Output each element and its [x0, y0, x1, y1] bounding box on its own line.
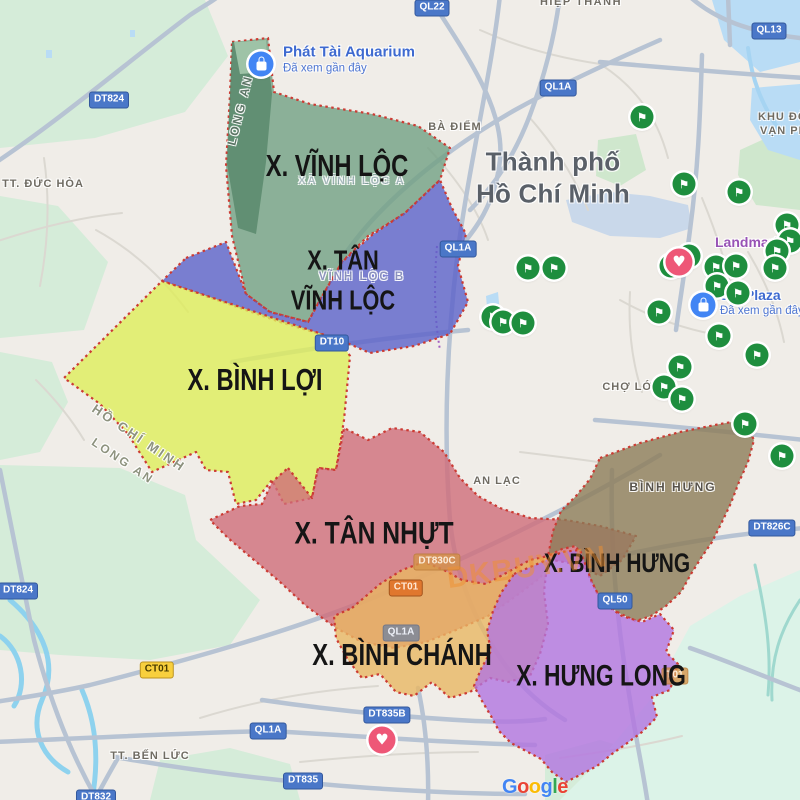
place-label: Thành phố — [486, 147, 621, 178]
flag-icon: ⚑ — [733, 287, 744, 299]
flag-icon: ⚑ — [712, 280, 723, 292]
road-badge-ql1a: QL1A — [250, 723, 287, 740]
commune-label-binh-loi: X. BÌNH LỢI — [187, 359, 322, 402]
commune-label-hung-long: X. HƯNG LONG — [516, 656, 686, 698]
flag-icon: ⚑ — [711, 261, 722, 273]
road-badge-ql1a: QL1A — [440, 241, 477, 258]
place-label: HIỆP THÀNH — [540, 0, 622, 8]
place-label: TT. BẾN LỨC — [110, 750, 189, 762]
flag-pin[interactable]: ⚑ — [728, 181, 751, 204]
commune-label-tan-vinh-loc: X. TÂNVĨNH LỘC — [291, 240, 395, 320]
flag-icon: ⚑ — [734, 186, 745, 198]
flag-icon: ⚑ — [518, 317, 529, 329]
flag-pin[interactable]: ⚑ — [517, 257, 540, 280]
flag-pin[interactable]: ⚑ — [725, 255, 748, 278]
commune-label-line: X. TÂN — [291, 240, 395, 280]
flag-pin[interactable]: ⚑ — [671, 388, 694, 411]
bag-icon — [698, 299, 708, 312]
google-logo-letter: g — [541, 776, 553, 798]
flag-icon: ⚑ — [731, 260, 742, 272]
place-label: KHU ĐÔ — [758, 111, 800, 123]
flag-pin[interactable]: ⚑ — [648, 301, 671, 324]
heart-icon: ♥ — [375, 732, 388, 747]
google-logo[interactable]: Google — [502, 776, 568, 799]
commune-label-line: X. VĨNH LỘC — [266, 145, 409, 188]
google-logo-letter: o — [517, 776, 529, 798]
map-overlay: HIỆP THÀNHBÀ ĐIỂMTT. ĐỨC HÒAKHU ĐÔVẠN PH… — [0, 0, 800, 800]
road-badge-dt835: DT835 — [283, 773, 323, 790]
road-badge-ct01: CT01 — [140, 662, 174, 679]
heart-pin[interactable]: ♥ — [666, 249, 693, 276]
flag-icon: ⚑ — [677, 393, 688, 405]
flag-pin[interactable]: ⚑ — [734, 413, 757, 436]
commune-label-line: X. TÂN NHỰT — [294, 510, 453, 555]
flag-icon: ⚑ — [654, 306, 665, 318]
commune-label-vinh-loc: X. VĨNH LỘC — [266, 145, 409, 188]
road-badge-dt835b: DT835B — [363, 707, 410, 724]
flag-icon: ⚑ — [659, 381, 670, 393]
commune-label-line: X. HƯNG LONG — [516, 656, 686, 698]
flag-icon: ⚑ — [772, 245, 783, 257]
google-logo-letter: e — [557, 776, 568, 798]
flag-icon: ⚑ — [714, 330, 725, 342]
road-badge-dt824: DT824 — [0, 583, 38, 600]
flag-icon: ⚑ — [770, 262, 781, 274]
flag-icon: ⚑ — [549, 262, 560, 274]
heart-pin[interactable]: ♥ — [369, 727, 396, 754]
google-logo-letter: o — [529, 776, 541, 798]
flag-icon: ⚑ — [498, 316, 509, 328]
flag-icon: ⚑ — [740, 418, 751, 430]
road-badge-ct01: CT01 — [389, 580, 423, 597]
road-badge-ql1a: QL1A — [540, 80, 577, 97]
flag-pin[interactable]: ⚑ — [708, 325, 731, 348]
road-badge-dt10: DT10 — [315, 335, 349, 352]
flag-pin[interactable]: ⚑ — [771, 445, 794, 468]
flag-icon: ⚑ — [675, 361, 686, 373]
flag-icon: ⚑ — [752, 349, 763, 361]
flag-icon: ⚑ — [679, 178, 690, 190]
map-canvas[interactable]: HIỆP THÀNHBÀ ĐIỂMTT. ĐỨC HÒAKHU ĐÔVẠN PH… — [0, 0, 800, 800]
road-badge-dt826c: DT826C — [748, 520, 795, 537]
road-badge-dt824: DT824 — [89, 92, 129, 109]
flag-pin[interactable]: ⚑ — [673, 173, 696, 196]
bag-shape — [256, 62, 266, 71]
flag-icon: ⚑ — [637, 111, 648, 123]
flag-pin[interactable]: ⚑ — [631, 106, 654, 129]
poi-sub: Đã xem gần đây — [720, 305, 800, 317]
bag-icon — [256, 58, 266, 71]
poi-sub: Đã xem gần đây — [283, 63, 415, 75]
place-label: AN LẠC — [473, 475, 521, 487]
poi-label[interactable]: Phát Tài AquariumĐã xem gần đây — [283, 44, 415, 75]
flag-pin[interactable]: ⚑ — [727, 282, 750, 305]
heart-icon: ♥ — [672, 254, 685, 269]
flag-pin[interactable]: ⚑ — [746, 344, 769, 367]
commune-label-tan-nhut: X. TÂN NHỰT — [294, 510, 453, 555]
commune-label-line: VĨNH LỘC — [291, 280, 395, 320]
place-label: VẠN PH — [760, 125, 800, 137]
poi-name: Phát Tài Aquarium — [283, 44, 415, 61]
flag-icon: ⚑ — [523, 262, 534, 274]
flag-pin[interactable]: ⚑ — [669, 356, 692, 379]
place-label: LONG AN — [224, 73, 255, 147]
place-label: BÀ ĐIỂM — [428, 121, 481, 133]
road-badge-ql50: QL50 — [597, 593, 632, 610]
place-label: TT. ĐỨC HÒA — [2, 178, 84, 190]
bag-pin[interactable] — [249, 52, 274, 77]
flag-pin[interactable]: ⚑ — [543, 257, 566, 280]
commune-label-binh-chanh: X. BÌNH CHÁNH — [312, 634, 491, 677]
road-badge-ql22: QL22 — [414, 0, 449, 17]
commune-label-line: X. BÌNH CHÁNH — [312, 634, 491, 677]
bag-shape — [698, 303, 708, 312]
place-label: BÌNH HƯNG — [629, 480, 716, 494]
google-logo-letter: G — [502, 776, 517, 798]
road-badge-ql13: QL13 — [751, 23, 786, 40]
flag-icon: ⚑ — [777, 450, 788, 462]
flag-pin[interactable]: ⚑ — [764, 257, 787, 280]
commune-label-line: X. BÌNH LỢI — [187, 359, 322, 402]
place-label: Hồ Chí Minh — [476, 179, 630, 210]
road-badge-dt832: DT832 — [76, 790, 116, 800]
bag-pin[interactable] — [691, 293, 716, 318]
flag-pin[interactable]: ⚑ — [512, 312, 535, 335]
